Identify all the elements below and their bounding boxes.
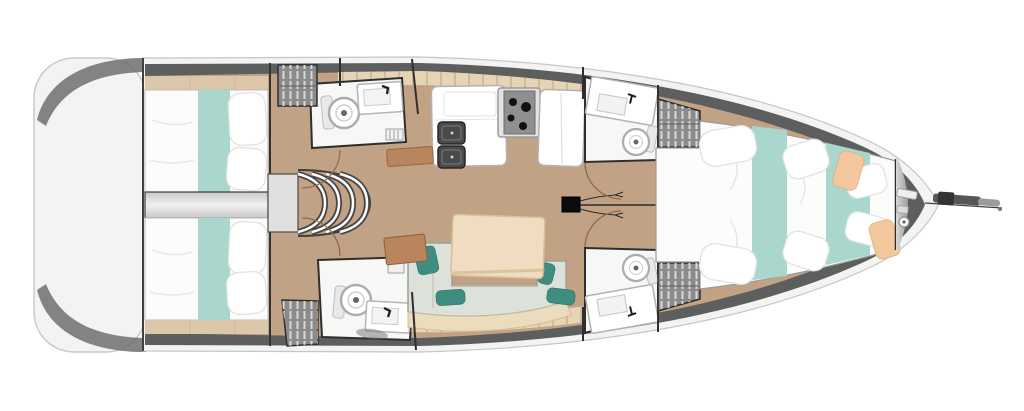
deck-fitting (897, 206, 909, 214)
stair-landing (268, 174, 298, 232)
pillow (228, 221, 268, 275)
hanging-locker-aft-top (278, 65, 317, 106)
mast-icon (562, 197, 580, 212)
chart-table (384, 234, 428, 265)
cabin-floor-strip (145, 76, 268, 90)
yacht-floor-plan (0, 0, 1024, 411)
sink-basin-icon (372, 307, 399, 324)
aft-cabin-starboard (145, 218, 268, 334)
pillow (226, 147, 268, 192)
anchor-roller (938, 191, 955, 205)
engine-band (145, 192, 268, 218)
engine-compartment (145, 192, 268, 218)
stern-platform (34, 58, 146, 352)
aft-head-starboard (318, 257, 414, 341)
fwd-head-port (585, 76, 659, 162)
burner (509, 98, 517, 106)
wood-shelf (386, 146, 433, 166)
burner (519, 122, 527, 130)
pillow (226, 271, 268, 316)
berth-teal-runner (198, 218, 230, 320)
anchor-icon (978, 198, 1001, 207)
fwd-head-starboard (585, 248, 659, 334)
hanging-locker-aft-bottom (282, 300, 318, 346)
aft-cabin-port (145, 76, 268, 192)
berth-teal-stripe (752, 126, 787, 280)
burner (508, 115, 515, 122)
cushion (546, 287, 576, 305)
berth-teal-runner (198, 90, 230, 192)
burner (521, 102, 531, 112)
cabin-floor-strip (145, 320, 268, 334)
yacht-floor-plan-page (0, 0, 1024, 411)
cushion (436, 289, 466, 306)
pillow (228, 92, 268, 146)
aft-head-port (310, 78, 406, 148)
